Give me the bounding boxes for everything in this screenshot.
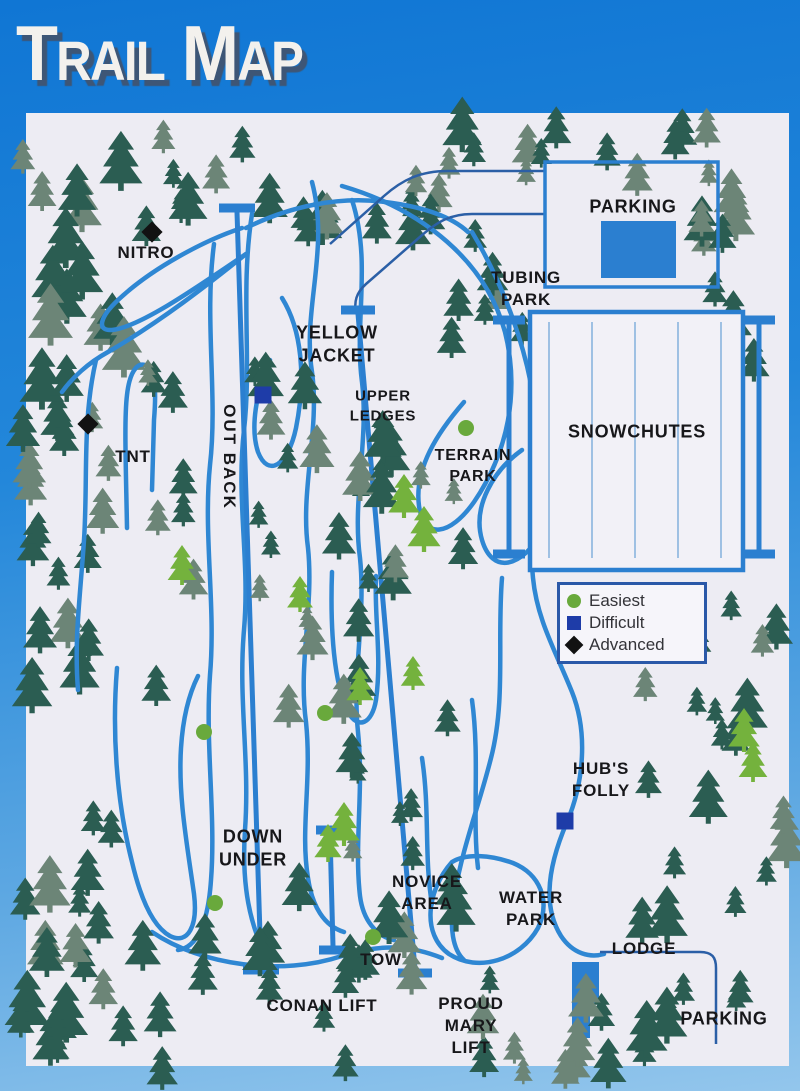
lift-label-conan-lift: CONAN LIFT: [267, 995, 378, 1017]
label-line: WATER: [499, 887, 563, 909]
facility-label-tubing-park: TUBING PARK: [491, 267, 561, 311]
difficult-square-icon: [567, 616, 581, 630]
label-line: PARK: [499, 909, 563, 931]
label-line: HUB'S: [572, 758, 630, 780]
trail-map-page: { "title": { "text": "Trail Map", "displ…: [0, 0, 800, 1091]
legend-item-easiest: Easiest: [567, 591, 697, 611]
label-line: MARY: [438, 1015, 503, 1037]
easiest-marker-down-under: [196, 724, 212, 740]
label-line: UPPER: [350, 387, 416, 407]
easiest-marker-tow: [365, 929, 381, 945]
label-line: PROUD: [438, 993, 503, 1015]
label-line: TUBING: [491, 267, 561, 289]
facility-label-snowchutes: SNOWCHUTES: [568, 420, 706, 443]
label-line: LEDGES: [350, 406, 416, 426]
label-line: NOVICE: [392, 871, 462, 893]
trail-label-upper-ledges: UPPER LEDGES: [350, 387, 416, 426]
parking-lot-top-fill: [601, 221, 676, 278]
trail-label-yellow-jacket: YELLOW JACKET: [296, 322, 378, 369]
trail-map-graphic: [0, 0, 800, 1091]
label-line: TERRAIN: [435, 446, 512, 467]
trail-label-nitro: NITRO: [118, 242, 175, 264]
legend-item-difficult: Difficult: [567, 613, 697, 633]
label-line: LIFT: [438, 1037, 503, 1059]
easiest-marker-terrain-park: [458, 420, 474, 436]
trail-label-out-back: OUT BACK: [218, 404, 240, 510]
legend-label: Advanced: [589, 635, 665, 655]
facility-label-lodge: LODGE: [612, 938, 676, 960]
easiest-circle-icon: [567, 594, 581, 608]
legend: EasiestDifficultAdvanced: [557, 582, 707, 664]
legend-label: Difficult: [589, 613, 644, 633]
trail-label-terrain-park: TERRAIN PARK: [435, 446, 512, 488]
trail-label-down-under: DOWN UNDER: [219, 826, 287, 873]
advanced-diamond-icon: [565, 636, 584, 655]
facility-label-water-park: WATER PARK: [499, 887, 563, 931]
trail-label-hubs-folly: HUB'S FOLLY: [572, 758, 630, 802]
easiest-marker-down-under: [207, 895, 223, 911]
lift-label-tow: TOW: [360, 949, 402, 971]
title-word1-initial: T: [16, 9, 56, 97]
difficult-marker-yellow-jacket: [255, 387, 272, 404]
label-line: AREA: [392, 893, 462, 915]
facility-label-parking-top: PARKING: [589, 195, 676, 218]
facility-label-parking-bottom: PARKING: [680, 1007, 767, 1030]
easiest-marker-out-back: [317, 705, 333, 721]
label-line: PARK: [491, 289, 561, 311]
label-line: UNDER: [219, 849, 287, 872]
trail-label-tnt: TNT: [115, 446, 150, 468]
title-word1-rest: RAIL: [56, 29, 164, 92]
label-line: YELLOW: [296, 322, 378, 345]
legend-label: Easiest: [589, 591, 645, 611]
legend-item-advanced: Advanced: [567, 635, 697, 655]
lift-label-proud-mary-lift: PROUD MARY LIFT: [438, 993, 503, 1059]
snowchutes-tow-left: [493, 320, 525, 554]
label-line: PARK: [435, 467, 512, 488]
label-line: DOWN: [219, 826, 287, 849]
trail-label-novice-area: NOVICE AREA: [392, 871, 462, 915]
label-line: JACKET: [296, 345, 378, 368]
page-title: TRAILMAP: [16, 14, 302, 92]
title-word2-rest: AP: [237, 29, 302, 92]
difficult-marker-hub-s-folly: [557, 813, 574, 830]
label-line: FOLLY: [572, 780, 630, 802]
title-word2-initial: M: [182, 9, 237, 97]
